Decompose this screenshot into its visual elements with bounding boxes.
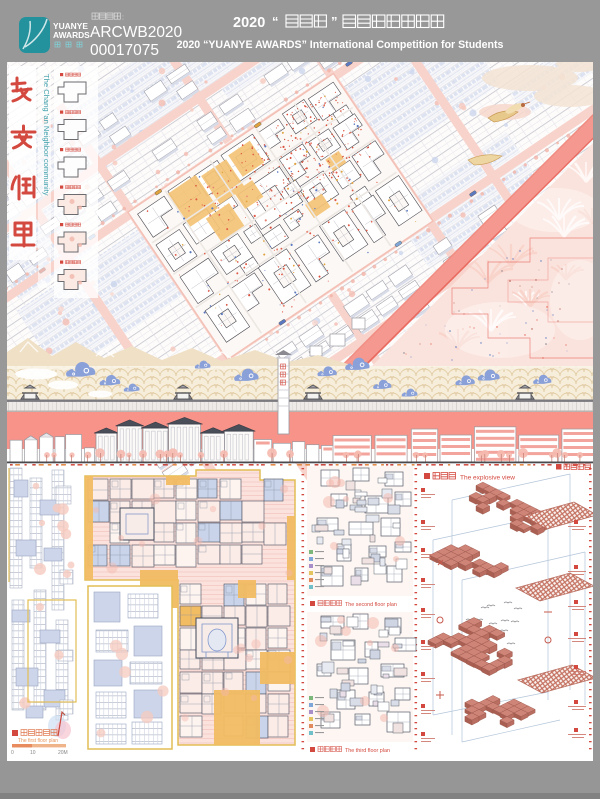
svg-text:“: “ (272, 14, 279, 29)
svg-text:”: ” (331, 14, 338, 29)
svg-text:The Chang ’an Neighbor communi: The Chang ’an Neighbor community (42, 74, 51, 196)
svg-text:0: 0 (11, 750, 14, 756)
svg-text:10: 10 (30, 750, 36, 756)
svg-text::: : (122, 15, 124, 22)
svg-text:2020: 2020 (233, 15, 265, 31)
svg-text:The third floor plan: The third floor plan (345, 748, 390, 754)
svg-text:ARCWB2020: ARCWB2020 (90, 24, 183, 41)
svg-text:20M: 20M (58, 750, 68, 756)
svg-text:The explosive view: The explosive view (460, 475, 515, 482)
svg-text:00017075: 00017075 (90, 42, 159, 59)
svg-text:2020 “YUANYE AWARDS” Internati: 2020 “YUANYE AWARDS” International Compe… (177, 39, 504, 51)
svg-text:The second floor plan: The second floor plan (345, 602, 397, 608)
svg-text:AWARDS: AWARDS (53, 30, 90, 40)
svg-text:The first floor plan: The first floor plan (18, 738, 58, 744)
